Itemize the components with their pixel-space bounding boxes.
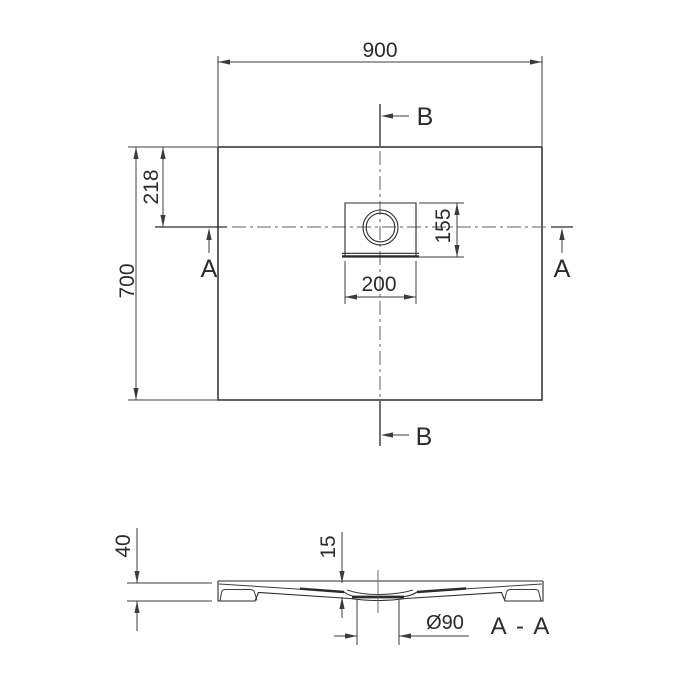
- dim-15: 15: [317, 532, 345, 618]
- dim-155-label: 155: [432, 208, 455, 243]
- section-view: 40 15 Ø90 A - A: [112, 528, 551, 645]
- dim-218: 218: [140, 147, 166, 227]
- section-a-left-label: A: [201, 255, 218, 283]
- dim-phi90-label: Ø90: [426, 612, 464, 634]
- dim-40-label: 40: [112, 534, 135, 557]
- right-foot-outline: [505, 590, 542, 602]
- dim-200: 200: [345, 261, 416, 304]
- dim-700-label: 700: [116, 263, 139, 298]
- section-marker-b-bottom: B: [380, 401, 432, 451]
- section-a-right-label: A: [554, 255, 571, 283]
- section-title: A - A: [491, 613, 552, 640]
- section-b-bottom-label: B: [416, 423, 433, 451]
- section-marker-a-right: A: [551, 227, 573, 283]
- technical-drawing-canvas: 900 700 218 155: [0, 0, 700, 700]
- section-marker-b-top: B: [380, 103, 433, 146]
- section-b-top-label: B: [417, 103, 434, 131]
- dim-200-label: 200: [361, 273, 396, 296]
- dim-218-label: 218: [140, 169, 163, 204]
- dim-40: 40: [112, 528, 212, 631]
- top-view: 900 700 218 155: [116, 39, 573, 451]
- dim-phi90: Ø90: [334, 599, 469, 645]
- dim-155: 155: [419, 203, 464, 257]
- left-foot-outline: [220, 590, 257, 602]
- dim-15-label: 15: [317, 535, 340, 558]
- dim-900-label: 900: [362, 39, 397, 62]
- section-marker-a-left: A: [155, 227, 227, 283]
- tray-profile: [218, 570, 543, 613]
